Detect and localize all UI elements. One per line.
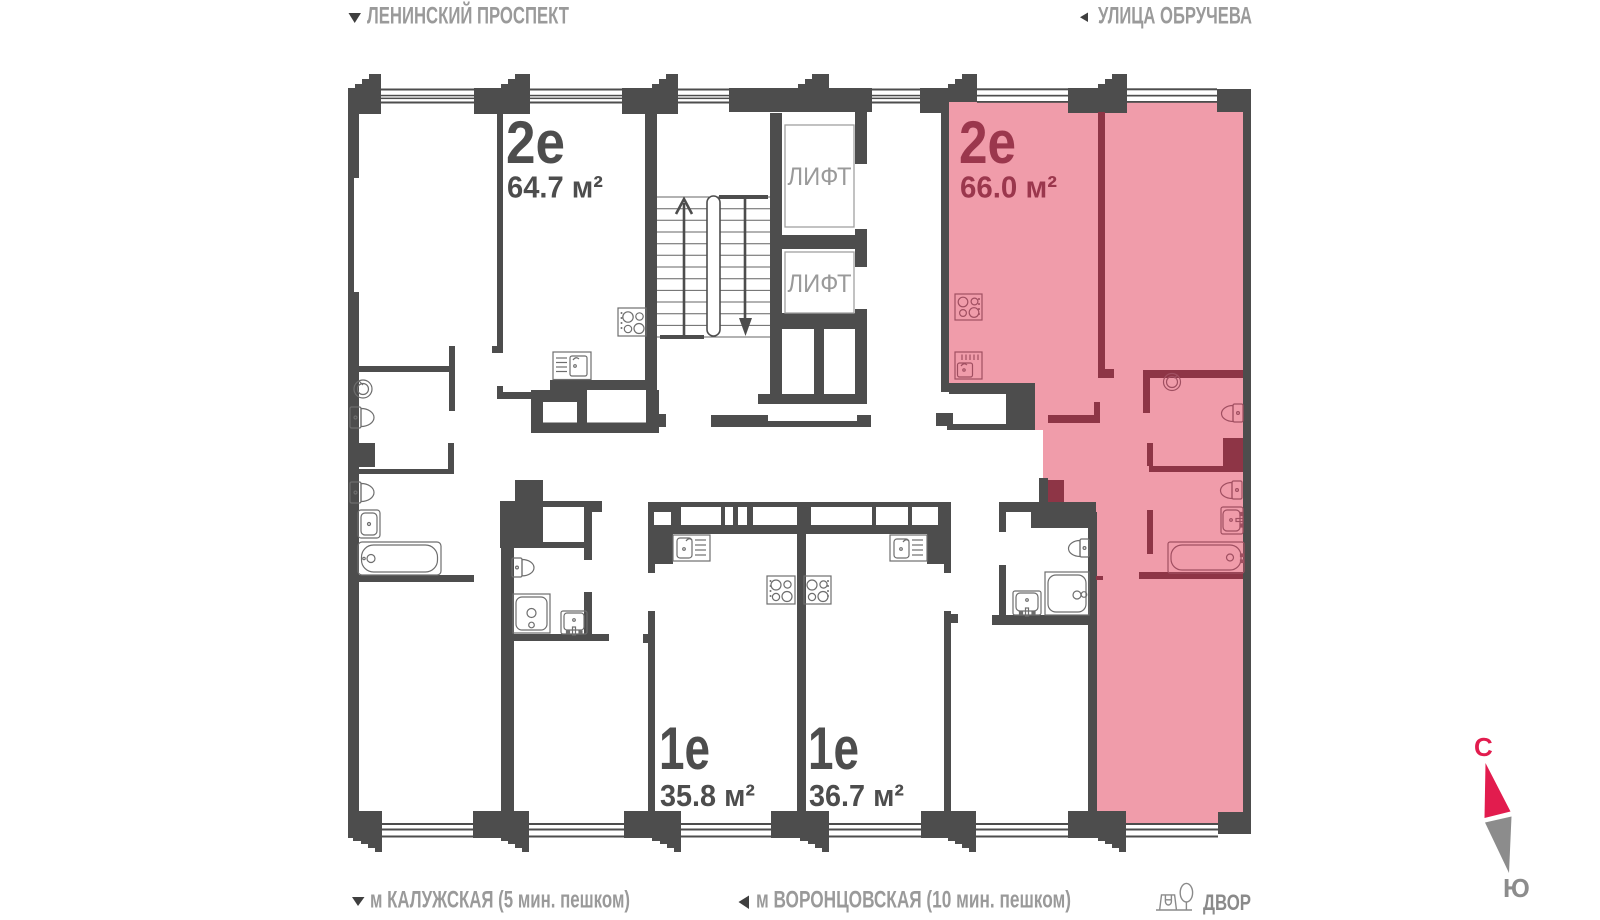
svg-text:УЛИЦА ОБРУЧЕВА: УЛИЦА ОБРУЧЕВА xyxy=(1098,3,1252,30)
svg-text:35.8 м²: 35.8 м² xyxy=(660,778,755,813)
svg-text:ЛИФТ: ЛИФТ xyxy=(788,163,852,191)
svg-text:ЛИФТ: ЛИФТ xyxy=(788,270,852,298)
svg-text:м КАЛУЖСКАЯ (5 мин. пешком): м КАЛУЖСКАЯ (5 мин. пешком) xyxy=(370,887,630,914)
svg-text:1е: 1е xyxy=(808,715,859,782)
svg-text:66.0 м²: 66.0 м² xyxy=(960,170,1057,205)
svg-text:ДВОР: ДВОР xyxy=(1203,890,1251,915)
svg-text:2е: 2е xyxy=(959,109,1016,176)
svg-text:м ВОРОНЦОВСКАЯ (10 мин. пешко: м ВОРОНЦОВСКАЯ (10 мин. пешком) xyxy=(756,887,1071,914)
svg-text:ЛЕНИНСКИЙ ПРОСПЕКТ: ЛЕНИНСКИЙ ПРОСПЕКТ xyxy=(367,2,569,30)
svg-text:36.7 м²: 36.7 м² xyxy=(809,778,904,813)
svg-text:1е: 1е xyxy=(659,715,710,782)
svg-text:64.7 м²: 64.7 м² xyxy=(507,170,603,205)
svg-text:2е: 2е xyxy=(506,109,565,176)
svg-text:Ю: Ю xyxy=(1503,873,1530,903)
svg-text:С: С xyxy=(1474,732,1493,762)
